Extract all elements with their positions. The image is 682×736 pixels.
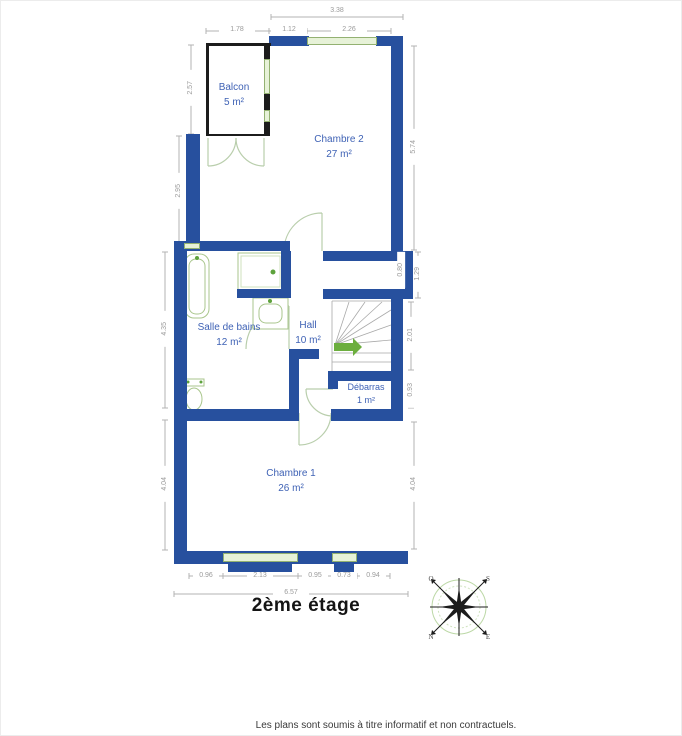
debarras-door [306, 389, 333, 416]
wall [391, 36, 403, 251]
dim-left-upper: 2.95 [175, 173, 183, 209]
balcony-door-right [236, 138, 264, 166]
balcony-wall [264, 94, 270, 110]
room-label-hall: Hall 10 m² [278, 319, 338, 348]
dim-top-window: 2.26 [331, 26, 367, 34]
window-sill [334, 564, 354, 572]
wall [281, 251, 291, 291]
dim-bottom-seg4: 0.73 [331, 572, 357, 580]
compass-o: O [428, 575, 433, 583]
room-area: 5 m² [204, 96, 264, 111]
compass-n: N [428, 633, 433, 641]
dim-wall-segment: 1.12 [271, 26, 307, 34]
wall [328, 371, 403, 381]
dim-bottom-seg3: 0.95 [302, 572, 328, 580]
wall [186, 134, 200, 249]
dim-bottom-seg5: 0.94 [360, 572, 386, 580]
room-label-balcon: Balcon 5 m² [204, 81, 264, 110]
room-label-salle-de-bains: Salle de bains 12 m² [169, 321, 289, 350]
dim-chambre2-height: 5.74 [410, 129, 418, 165]
dim-left-middle: 4.35 [161, 311, 169, 347]
room-name: Chambre 1 [241, 467, 341, 482]
dim-recess-inner: 0.80 [397, 252, 405, 288]
wall [269, 36, 309, 46]
dim-chambre1-height: 4.04 [410, 466, 418, 502]
compass-rose: S O N E [428, 575, 490, 641]
balcony-wall [206, 43, 271, 46]
room-area: 26 m² [241, 482, 341, 497]
window [332, 553, 357, 562]
toilet [185, 379, 204, 410]
staircase [332, 301, 391, 371]
room-label-chambre1: Chambre 1 26 m² [241, 467, 341, 496]
dim-debarras-height: 0.93 [407, 372, 415, 408]
window [264, 59, 270, 94]
balcony-edge [206, 134, 267, 136]
window [307, 37, 377, 45]
room-area: 10 m² [278, 334, 338, 349]
chambre1-door [299, 413, 331, 445]
floor-plan-drawing: S O N E [1, 1, 682, 736]
room-name: Chambre 2 [289, 133, 389, 148]
window [264, 110, 270, 122]
floor-title: 2ème étage [226, 595, 386, 617]
window [184, 243, 200, 249]
wall [237, 289, 291, 298]
room-label-debarras: Débarras 1 m² [335, 381, 397, 406]
dim-bottom-seg2: 2.13 [247, 572, 273, 580]
room-name: Hall [278, 319, 338, 334]
balcony-wall [264, 43, 270, 59]
bathtub [185, 254, 209, 318]
dim-left-lower: 4.04 [161, 466, 169, 502]
room-label-chambre2: Chambre 2 27 m² [289, 133, 389, 162]
compass-e: E [486, 633, 490, 641]
room-name: Balcon [204, 81, 264, 96]
wall [174, 241, 187, 564]
room-area: 12 m² [169, 336, 289, 351]
room-area: 27 m² [289, 148, 389, 163]
window-sill [228, 564, 292, 572]
dim-balcon-width: 1.78 [219, 26, 255, 34]
balcony-door-left [208, 138, 236, 166]
dim-top-overall: 3.38 [319, 7, 355, 15]
dim-bottom-seg1: 0.96 [193, 572, 219, 580]
disclaimer-text: Les plans sont soumis à titre informatif… [89, 720, 682, 731]
room-area: 1 m² [335, 394, 397, 407]
dim-stair-height: 2.01 [407, 317, 415, 353]
dim-recess-outer: 1.29 [414, 256, 422, 292]
window [223, 553, 298, 562]
room-name: Salle de bains [169, 321, 289, 336]
wall [174, 409, 299, 421]
dim-balcon-height: 2.57 [187, 70, 195, 106]
wall [405, 251, 413, 299]
shower [238, 253, 283, 290]
wall [289, 359, 299, 409]
wall [289, 349, 319, 359]
wall [331, 409, 403, 421]
floor-plan-page: S O N E Balcon 5 m² Chamb [0, 0, 682, 736]
room-name: Débarras [335, 381, 397, 394]
compass-s: S [486, 575, 490, 583]
